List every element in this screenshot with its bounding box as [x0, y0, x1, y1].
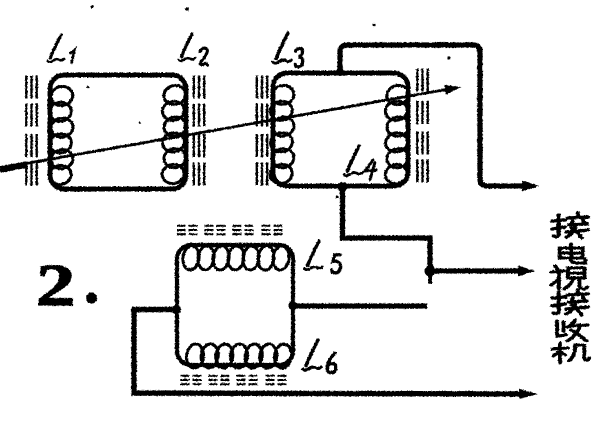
svg-text:2: 2 [36, 253, 75, 318]
